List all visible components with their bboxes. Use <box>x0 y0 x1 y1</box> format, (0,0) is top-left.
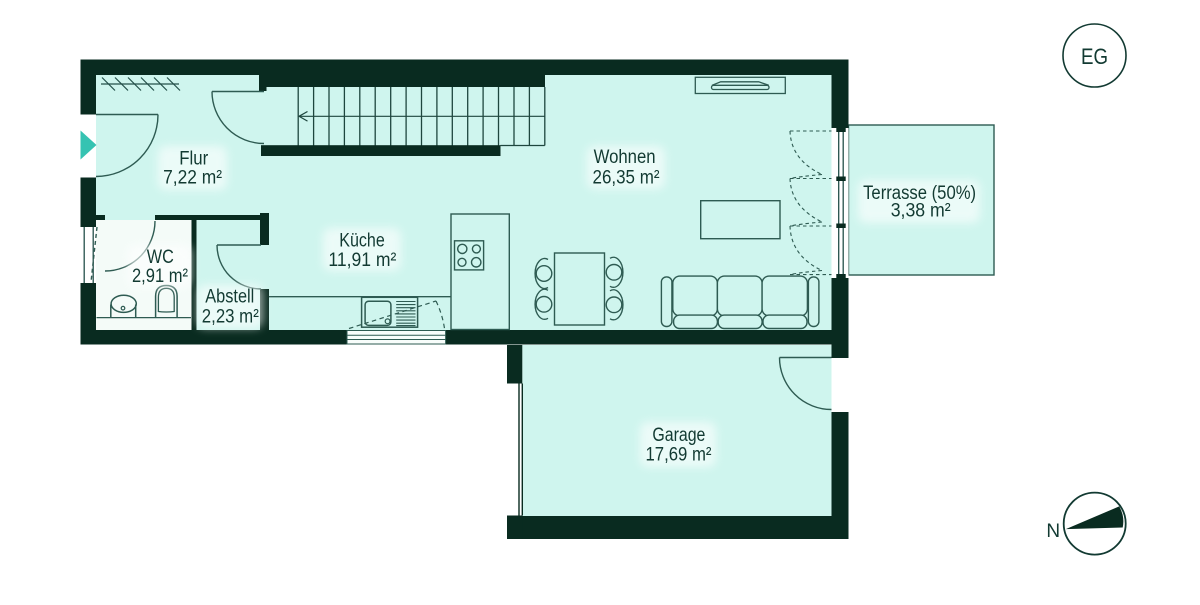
svg-text:26,35 m²: 26,35 m² <box>593 168 660 189</box>
svg-text:Flur: Flur <box>179 148 209 169</box>
svg-text:3,38 m²: 3,38 m² <box>891 201 951 222</box>
svg-text:EG: EG <box>1081 44 1108 69</box>
svg-text:N: N <box>1046 521 1060 542</box>
svg-text:Garage: Garage <box>652 425 705 446</box>
svg-text:Abstell: Abstell <box>205 287 254 308</box>
svg-text:WC: WC <box>147 247 174 268</box>
svg-text:2,23 m²: 2,23 m² <box>202 307 259 328</box>
svg-text:Küche: Küche <box>339 231 385 252</box>
svg-text:11,91 m²: 11,91 m² <box>328 250 396 271</box>
svg-text:Wohnen: Wohnen <box>594 147 656 168</box>
svg-text:7,22 m²: 7,22 m² <box>163 167 222 188</box>
svg-text:2,91 m²: 2,91 m² <box>132 266 188 287</box>
svg-text:17,69 m²: 17,69 m² <box>646 444 712 465</box>
